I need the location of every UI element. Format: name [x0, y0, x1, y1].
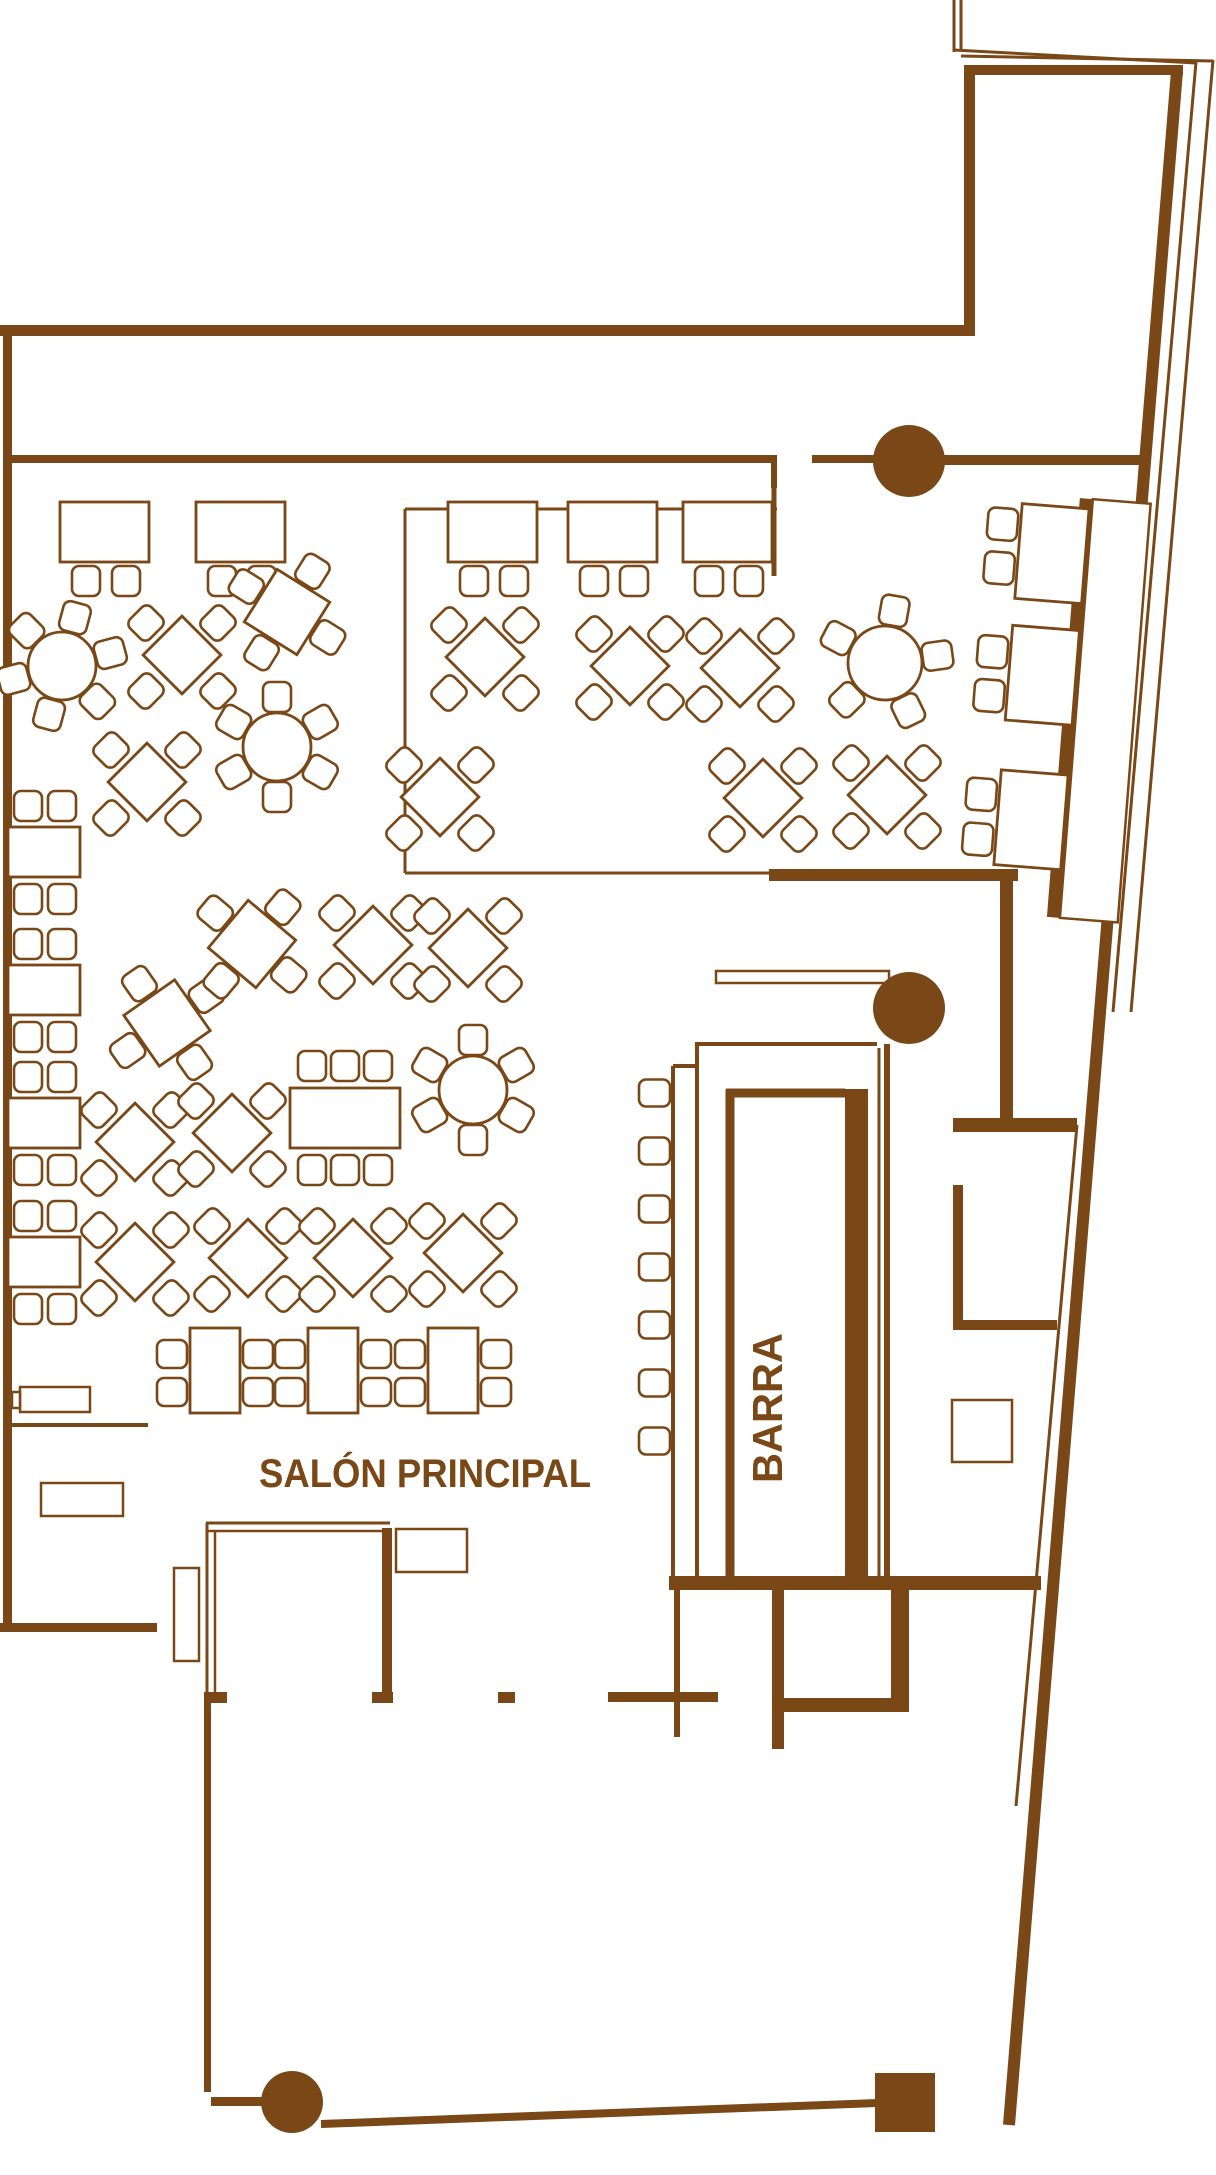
table-group-diamond	[573, 613, 686, 722]
table-group-side	[275, 1328, 391, 1413]
chair	[275, 1378, 305, 1406]
wall	[953, 1185, 963, 1330]
chair	[162, 797, 203, 838]
chair	[580, 566, 608, 596]
table-group-round	[0, 600, 128, 733]
round-table	[848, 626, 922, 700]
chair	[48, 1155, 76, 1185]
column	[261, 2071, 323, 2133]
banquette-group	[957, 491, 1150, 922]
chair	[976, 635, 1008, 669]
wall	[0, 325, 975, 336]
table-group-left	[8, 1062, 80, 1185]
table-group-rect	[60, 502, 149, 596]
round-table	[28, 632, 96, 700]
counter	[20, 1387, 90, 1412]
chair	[191, 1273, 232, 1314]
chair	[500, 672, 541, 713]
chair	[90, 797, 131, 838]
chair	[14, 1062, 42, 1092]
chair	[48, 1201, 76, 1231]
chair	[331, 1051, 359, 1081]
table-group-diamond	[428, 604, 541, 713]
table	[308, 1328, 358, 1413]
chair	[973, 679, 1005, 713]
table	[1015, 504, 1089, 604]
table-group-diamond	[296, 1205, 409, 1314]
chair	[395, 1340, 425, 1368]
chair	[902, 810, 943, 851]
wall	[964, 65, 975, 336]
bar-stool	[639, 1254, 670, 1281]
chair	[48, 1022, 76, 1052]
chair	[364, 1051, 392, 1081]
table	[428, 1328, 478, 1413]
table	[8, 1098, 80, 1148]
wall	[674, 1590, 680, 1737]
table-group-side	[395, 1328, 511, 1413]
chair	[395, 1378, 425, 1406]
table	[290, 1088, 400, 1148]
chair	[620, 566, 648, 596]
table	[190, 1328, 240, 1413]
chair	[428, 672, 469, 713]
chair	[14, 1022, 42, 1052]
furniture-layer	[0, 491, 1151, 1454]
chair	[298, 1051, 326, 1081]
chair	[150, 1277, 191, 1318]
main-hall-label: SALÓN PRINCIPAL	[259, 1450, 591, 1496]
chair	[247, 1148, 288, 1189]
table	[683, 502, 772, 562]
chair	[58, 600, 93, 636]
chair	[72, 566, 100, 596]
chair	[364, 1155, 392, 1185]
chair	[645, 681, 686, 722]
wall	[953, 1320, 1057, 1330]
table-group-rect	[568, 502, 657, 596]
bar-stool	[639, 1370, 670, 1397]
chair	[459, 1125, 487, 1155]
wall	[0, 1623, 157, 1632]
table-group-left	[8, 791, 80, 914]
counter	[174, 1568, 199, 1661]
table-group-diamond	[78, 1089, 191, 1198]
wall	[784, 1698, 909, 1712]
table	[8, 827, 80, 877]
table-group-diamond	[125, 602, 238, 711]
round-table	[439, 1056, 507, 1124]
table-group-diamond	[406, 1200, 519, 1309]
table-group-diamond	[191, 1205, 304, 1314]
wall	[953, 1118, 1077, 1132]
table-group-round	[410, 1025, 537, 1155]
wall	[769, 869, 1018, 881]
chair	[243, 1378, 273, 1406]
chair	[112, 566, 140, 596]
table	[568, 502, 657, 562]
table	[196, 502, 285, 562]
chair	[157, 1378, 187, 1406]
counter	[12, 1392, 20, 1408]
chair	[361, 1340, 391, 1368]
chair	[14, 791, 42, 821]
wall	[943, 455, 1147, 465]
table-group-diamond	[90, 729, 203, 838]
chair	[14, 1155, 42, 1185]
chair	[125, 670, 166, 711]
chair	[361, 1378, 391, 1406]
wall	[669, 1576, 1041, 1590]
wall	[845, 1089, 868, 1576]
chair	[459, 1025, 487, 1055]
floor-plan-page: SALÓN PRINCIPAL BARRA	[0, 0, 1216, 2175]
round-table	[243, 713, 311, 781]
chair	[48, 1294, 76, 1324]
chair	[92, 636, 128, 671]
table-group-diamond	[683, 615, 796, 724]
chair	[14, 884, 42, 914]
wall-line	[1009, 71, 1177, 2125]
chair	[481, 1340, 511, 1368]
table-group-diamond	[383, 744, 496, 853]
table-group-side	[157, 1328, 273, 1413]
wall-line	[321, 2103, 877, 2124]
chair	[14, 1201, 42, 1231]
table	[60, 502, 149, 562]
chair	[983, 551, 1015, 585]
table-group-diamond	[175, 1080, 288, 1189]
floor-plan: SALÓN PRINCIPAL BARRA	[0, 0, 1216, 2175]
chair	[383, 812, 424, 853]
chair	[921, 640, 955, 672]
chair	[830, 810, 871, 851]
chair	[406, 1268, 447, 1309]
chair	[331, 1155, 359, 1185]
chair	[573, 681, 614, 722]
wall	[964, 65, 1183, 75]
chair	[706, 813, 747, 854]
wall	[812, 455, 875, 463]
counter	[716, 971, 889, 983]
chair	[878, 594, 911, 628]
wall	[204, 1703, 211, 2092]
wall	[772, 1590, 784, 1749]
chair	[14, 1294, 42, 1324]
counter	[952, 1400, 1012, 1462]
wall	[875, 2073, 935, 2132]
chair	[78, 1277, 119, 1318]
wall	[498, 1692, 515, 1703]
table-group-diamond	[316, 892, 429, 1001]
chair	[683, 683, 724, 724]
table-group-left	[8, 1201, 80, 1324]
bar-stool	[639, 1080, 670, 1107]
chair	[778, 813, 819, 854]
wall	[891, 1590, 909, 1712]
chair	[48, 1062, 76, 1092]
table-group-diamond	[830, 742, 943, 851]
bar-stool	[639, 1312, 670, 1339]
chair	[48, 791, 76, 821]
chair	[157, 1340, 187, 1368]
bar-stool	[639, 1196, 670, 1223]
chair	[962, 822, 994, 856]
wall	[372, 1692, 393, 1703]
table-group-diamond	[706, 745, 819, 854]
column	[873, 972, 945, 1044]
chair	[275, 1340, 305, 1368]
table-group-round	[214, 682, 341, 812]
wall	[382, 1528, 392, 1692]
wall	[211, 2097, 263, 2106]
wall	[204, 1692, 227, 1703]
column	[873, 425, 945, 497]
chair	[316, 960, 357, 1001]
wall	[12, 455, 773, 463]
counter	[41, 1483, 123, 1516]
counter	[396, 1529, 467, 1572]
table	[1005, 625, 1079, 725]
wall	[1000, 881, 1013, 1120]
table	[994, 770, 1068, 870]
table	[8, 1237, 80, 1287]
table-group-diamond	[411, 895, 524, 1004]
chair	[48, 884, 76, 914]
chair	[296, 1273, 337, 1314]
chair	[48, 929, 76, 959]
table-group-diamond	[78, 1209, 191, 1318]
bar-label: BARRA	[744, 1333, 791, 1483]
bar-stool	[639, 1428, 670, 1455]
table	[448, 502, 537, 562]
table-group-tilted	[226, 551, 348, 673]
chair	[263, 682, 291, 712]
wall	[608, 1692, 718, 1702]
chair	[500, 566, 528, 596]
chair	[14, 929, 42, 959]
table-group-six	[290, 1051, 400, 1185]
table-group-round	[818, 594, 954, 731]
chair	[481, 1378, 511, 1406]
table	[8, 965, 80, 1015]
chair	[263, 782, 291, 812]
bar-stool	[639, 1138, 670, 1165]
chair	[755, 683, 796, 724]
chair	[298, 1155, 326, 1185]
chair	[478, 1268, 519, 1309]
chair	[965, 777, 997, 811]
chair	[243, 1340, 273, 1368]
chair	[986, 507, 1018, 541]
chair	[460, 566, 488, 596]
chair	[368, 1273, 409, 1314]
chair	[695, 566, 723, 596]
table-group-left	[8, 929, 80, 1052]
chair	[32, 696, 67, 732]
table-group-rect	[448, 502, 537, 596]
chair	[735, 566, 763, 596]
table-group-tilted	[195, 887, 310, 1002]
chair	[483, 963, 524, 1004]
chair	[78, 1157, 119, 1198]
table-group-rect	[683, 502, 772, 596]
chair	[455, 812, 496, 853]
